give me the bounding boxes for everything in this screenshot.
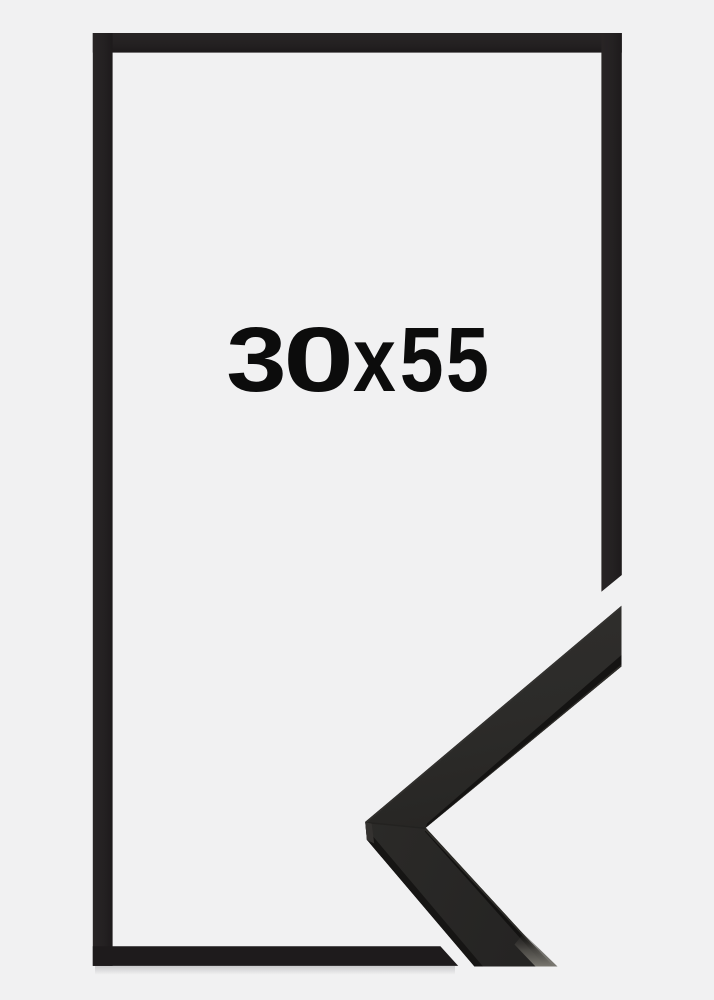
svg-text:0: 0 [283,308,354,411]
svg-text:5: 5 [446,308,489,411]
svg-text:x: x [353,308,396,411]
svg-text:5: 5 [400,310,444,412]
svg-text:3: 3 [226,309,286,411]
